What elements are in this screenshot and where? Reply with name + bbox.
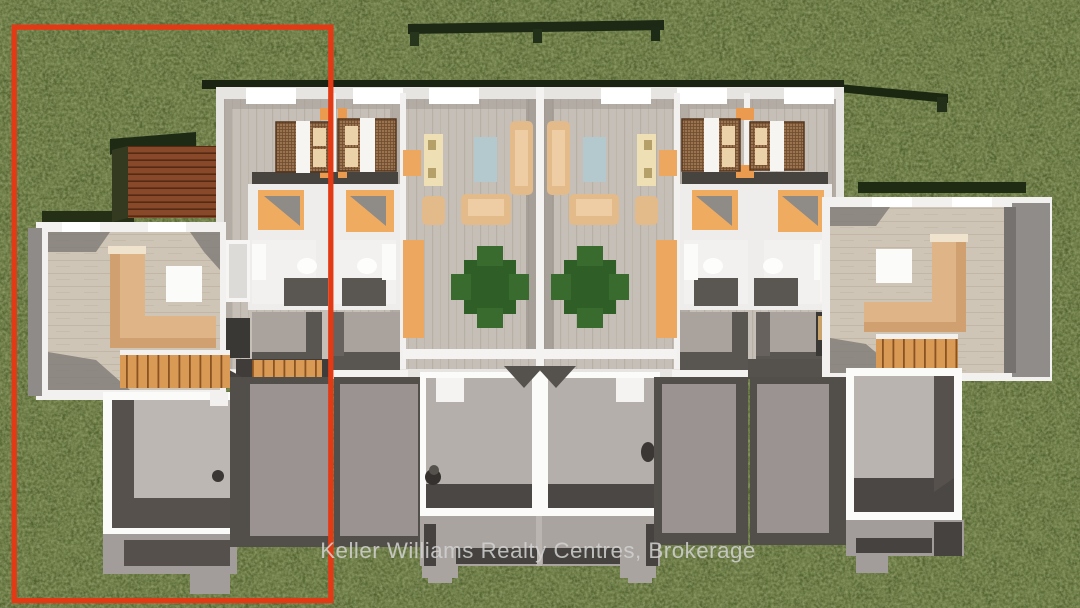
svg-text:Keller Williams Realty Centres: Keller Williams Realty Centres, Brokerag… (320, 538, 756, 563)
